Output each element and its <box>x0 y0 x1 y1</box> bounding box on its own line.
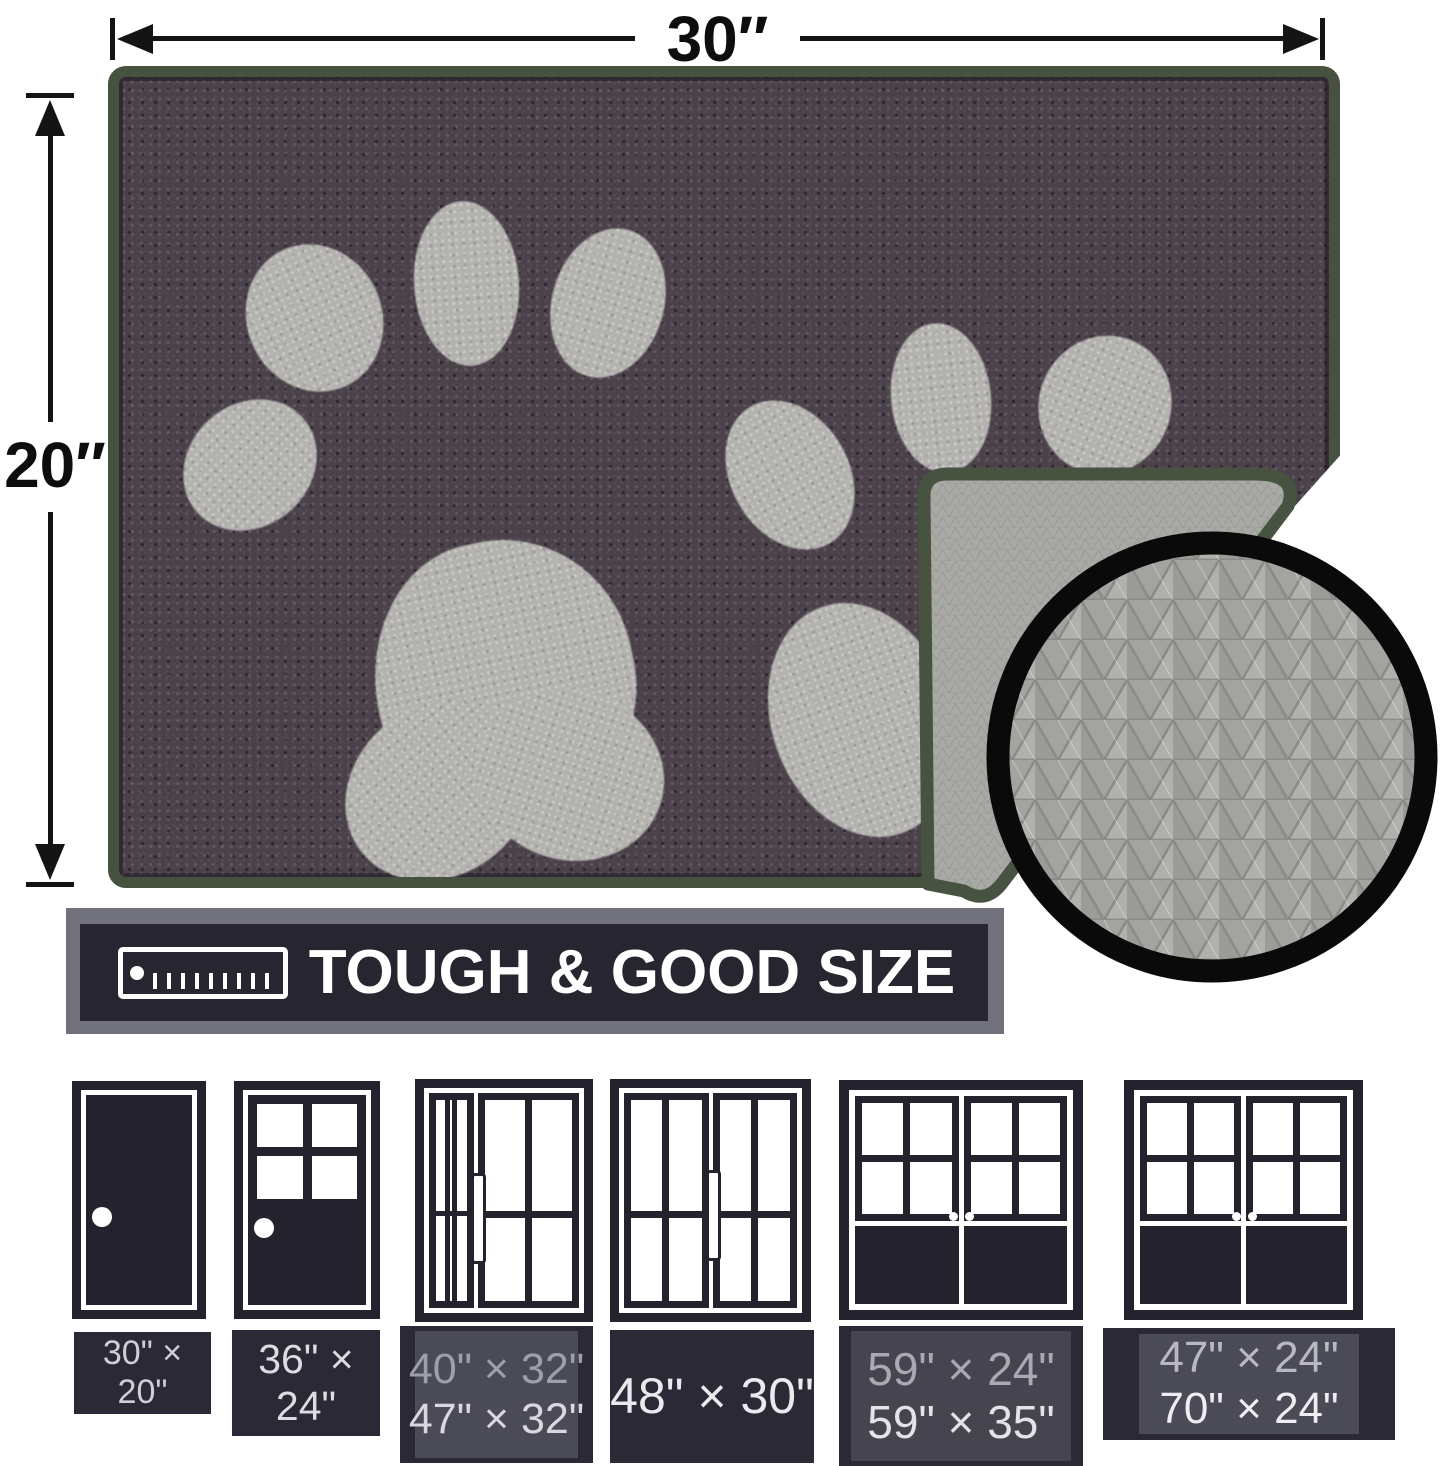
door-slab <box>1140 1226 1241 1304</box>
door-slab <box>964 1226 1068 1304</box>
window-pane <box>1253 1103 1293 1155</box>
product-infographic: 30″ 20″ TOUGH & GOOD SIZE <box>0 0 1446 1466</box>
width-dimension-label: 30″ <box>630 2 805 76</box>
size-text: 48" × 30" <box>610 1368 814 1426</box>
size-text: 47" × 24" <box>1103 1333 1395 1384</box>
width-dim-endbar-right <box>1320 18 1325 60</box>
door-slab <box>86 1095 192 1305</box>
sliding-patio-door-icon <box>415 1079 593 1322</box>
height-dim-arrowhead-top <box>35 100 65 136</box>
window-pane <box>910 1103 951 1155</box>
door-body <box>248 1095 366 1305</box>
window-pane <box>1194 1162 1234 1214</box>
size-text: 59" × 35" <box>839 1396 1083 1449</box>
door-leaf <box>1246 1096 1347 1304</box>
muntin <box>525 1100 532 1301</box>
door-handle <box>471 1173 486 1264</box>
size-label-47x24-70x24: 47" × 24" 70" × 24" <box>1103 1328 1395 1440</box>
height-dim-line-top <box>48 134 53 422</box>
door-body <box>429 1093 579 1308</box>
wide-glass-panel <box>478 1093 579 1308</box>
glass-panel <box>624 1093 709 1308</box>
height-dim-endbar-bottom <box>26 882 74 887</box>
window-pane <box>971 1162 1012 1214</box>
narrow-glass-panel <box>429 1093 474 1308</box>
window-pane <box>1019 1162 1060 1214</box>
size-text: 36" × 24" <box>232 1336 380 1430</box>
banner-title: TOUGH & GOOD SIZE <box>292 924 972 1021</box>
door-slab <box>855 1226 959 1304</box>
door-handle <box>706 1170 721 1261</box>
window-pane <box>312 1156 358 1199</box>
size-label-40x32-47x32: 40" × 32" 47" × 32" <box>400 1326 593 1463</box>
muntin <box>436 1211 467 1216</box>
paw-print-right-pad <box>736 576 987 863</box>
muntin <box>631 1211 702 1218</box>
window-pane <box>257 1104 303 1147</box>
door-body <box>855 1096 1067 1304</box>
door-handle-dot <box>1232 1212 1241 1221</box>
door-leaf <box>964 1096 1068 1304</box>
door-handle-dot <box>1248 1212 1257 1221</box>
door-window-panes <box>248 1095 366 1208</box>
door-knob <box>254 1218 274 1238</box>
window-pane <box>1300 1103 1340 1155</box>
size-label-48x30: 48" × 30" <box>610 1330 814 1463</box>
paw-print-left-toe-3 <box>533 215 683 392</box>
door-window-panes <box>1246 1096 1347 1221</box>
size-text: 59" × 24" <box>839 1343 1083 1396</box>
single-solid-door-icon <box>72 1081 206 1319</box>
window-pane <box>971 1103 1012 1155</box>
mat-fuzzy-surface <box>119 77 1329 877</box>
window-pane <box>1019 1103 1060 1155</box>
muntin <box>751 1100 758 1301</box>
single-window-door-icon <box>234 1081 380 1319</box>
paw-print-right-toe-2 <box>883 318 998 478</box>
width-dim-line-right <box>800 36 1287 41</box>
size-label-36x24: 36" × 24" <box>232 1330 380 1436</box>
door-window-panes <box>1140 1096 1241 1221</box>
door-slab <box>248 1208 366 1305</box>
door-knob <box>92 1207 112 1227</box>
size-text: 70" × 24" <box>1103 1384 1395 1435</box>
french-double-door-wide-icon <box>1124 1080 1363 1320</box>
window-pane <box>1147 1162 1187 1214</box>
window-pane <box>862 1103 903 1155</box>
muntin <box>485 1211 572 1218</box>
door-slab <box>1246 1226 1347 1304</box>
ruler-icon-ticks <box>153 973 277 989</box>
paw-print-right-toe-1 <box>699 377 880 573</box>
muntin <box>662 1100 669 1301</box>
paw-print-left-toe-1 <box>222 222 408 415</box>
door-leaf <box>1140 1096 1241 1304</box>
door-window-panes <box>964 1096 1068 1221</box>
paw-print-left-toe-4 <box>156 372 343 558</box>
window-pane <box>862 1162 903 1214</box>
ruler-icon <box>118 947 288 999</box>
muntin <box>445 1100 450 1301</box>
window-pane <box>1300 1162 1340 1214</box>
width-dim-arrowhead-right <box>1283 24 1319 54</box>
paw-print-left-toe-2 <box>408 198 524 370</box>
french-double-door-icon <box>839 1080 1083 1320</box>
height-dimension-label: 20″ <box>0 428 110 502</box>
double-sliding-glass-door-icon <box>610 1079 811 1322</box>
window-pane <box>1253 1162 1293 1214</box>
door-window-panes <box>855 1096 959 1221</box>
width-dim-line-left <box>148 36 635 41</box>
window-pane <box>1147 1103 1187 1155</box>
height-dim-line-bottom <box>48 512 53 846</box>
door-body <box>1140 1096 1347 1304</box>
size-text: 30" × 20" <box>74 1334 211 1412</box>
window-pane <box>910 1162 951 1214</box>
height-dim-arrowhead-bottom <box>35 844 65 880</box>
door-body <box>624 1093 797 1308</box>
glass-panel <box>713 1093 798 1308</box>
muntin <box>720 1211 791 1218</box>
door-leaf <box>855 1096 959 1304</box>
paw-print-right-toe-3 <box>1016 314 1194 496</box>
size-label-30x20: 30" × 20" <box>74 1332 211 1414</box>
door-mat <box>108 66 1340 888</box>
size-text: 47" × 32" <box>400 1395 593 1444</box>
size-text: 40" × 32" <box>400 1345 593 1394</box>
width-dim-endbar-left <box>110 18 115 60</box>
window-pane <box>312 1104 358 1147</box>
window-pane <box>257 1156 303 1199</box>
window-pane <box>1194 1103 1234 1155</box>
size-label-59x24-59x35: 59" × 24" 59" × 35" <box>839 1326 1083 1466</box>
muntin <box>452 1100 457 1301</box>
height-dim-endbar-top <box>26 93 74 98</box>
